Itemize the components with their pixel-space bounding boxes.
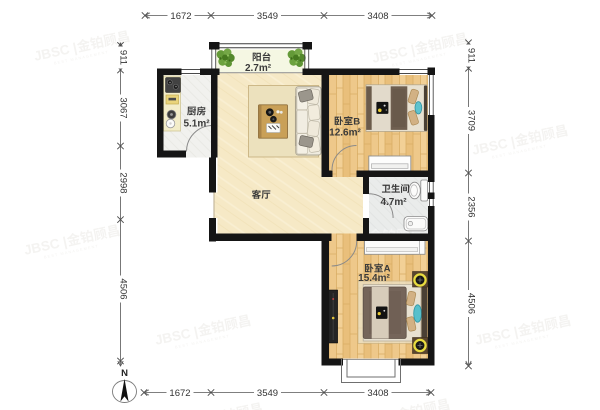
svg-text:12.6m²: 12.6m² — [329, 128, 361, 139]
svg-text:15.4m²: 15.4m² — [358, 273, 390, 284]
svg-text:3549: 3549 — [257, 11, 278, 22]
svg-text:911: 911 — [118, 50, 129, 65]
svg-text:N: N — [121, 368, 128, 379]
svg-text:2356: 2356 — [466, 196, 477, 217]
svg-text:3709: 3709 — [466, 110, 477, 131]
svg-text:B: B — [353, 116, 360, 127]
svg-text:2998: 2998 — [118, 172, 129, 193]
svg-text:4506: 4506 — [118, 278, 129, 299]
svg-text:1672: 1672 — [170, 11, 191, 22]
svg-text:4.7m²: 4.7m² — [380, 197, 407, 208]
svg-text:911: 911 — [466, 48, 477, 63]
svg-text:3067: 3067 — [118, 97, 129, 118]
svg-text:3408: 3408 — [367, 388, 388, 399]
svg-text:3408: 3408 — [367, 11, 388, 22]
svg-text:3549: 3549 — [257, 388, 278, 399]
svg-text:5.1m²: 5.1m² — [183, 119, 210, 130]
svg-text:1672: 1672 — [169, 388, 190, 399]
svg-text:2.7m²: 2.7m² — [245, 63, 272, 74]
svg-text:4506: 4506 — [466, 293, 477, 314]
